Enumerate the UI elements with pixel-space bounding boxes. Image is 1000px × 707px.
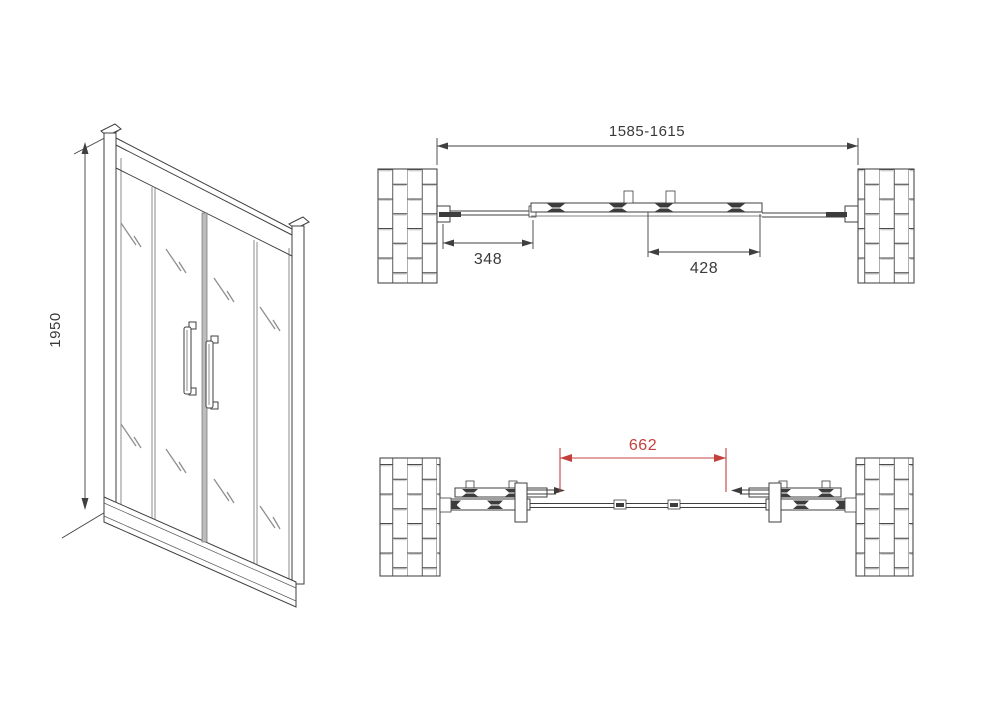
anti-jump-tab xyxy=(666,191,675,203)
brick-wall-left xyxy=(380,458,440,576)
sliding-panel-band xyxy=(531,203,762,212)
panel-stack-left xyxy=(440,481,565,522)
handle-left xyxy=(184,322,196,395)
total-width-dimension: 1585-1615 xyxy=(437,123,858,165)
left-stile xyxy=(104,133,116,505)
bottom-sill xyxy=(104,497,296,607)
right-stile xyxy=(292,226,304,584)
opening-dimension: 662 xyxy=(560,437,726,492)
anti-jump-tab xyxy=(624,191,633,203)
track-clip xyxy=(614,500,626,509)
plan-view-open: 662 xyxy=(380,437,913,576)
brick-wall-left xyxy=(378,169,437,283)
total-width-label: 1585-1615 xyxy=(609,123,685,140)
track-assembly-closed xyxy=(437,191,858,222)
end-profile-plate xyxy=(515,483,527,522)
left-panel-label: 348 xyxy=(474,251,502,268)
height-dimension-label: 1950 xyxy=(47,312,64,347)
drawing-sheet: 1950 xyxy=(0,0,1000,707)
technical-drawing-canvas: 1950 xyxy=(0,0,1000,707)
door-handles xyxy=(184,322,218,409)
isometric-view: 1950 xyxy=(47,124,309,607)
brick-wall-right xyxy=(858,169,914,283)
panel-stack-right xyxy=(731,481,856,522)
glass-reflection-mark xyxy=(121,223,280,529)
brick-wall-right xyxy=(856,458,913,576)
right-panel-dimension: 428 xyxy=(648,212,760,277)
left-panel-dimension: 348 xyxy=(443,220,533,268)
door-panels xyxy=(121,187,280,565)
handle-right xyxy=(206,336,218,409)
opening-dimension-label: 662 xyxy=(629,437,657,454)
right-panel-label: 428 xyxy=(690,260,718,277)
plan-view-closed: 1585-1615 xyxy=(378,123,914,283)
track-clip xyxy=(668,500,680,509)
